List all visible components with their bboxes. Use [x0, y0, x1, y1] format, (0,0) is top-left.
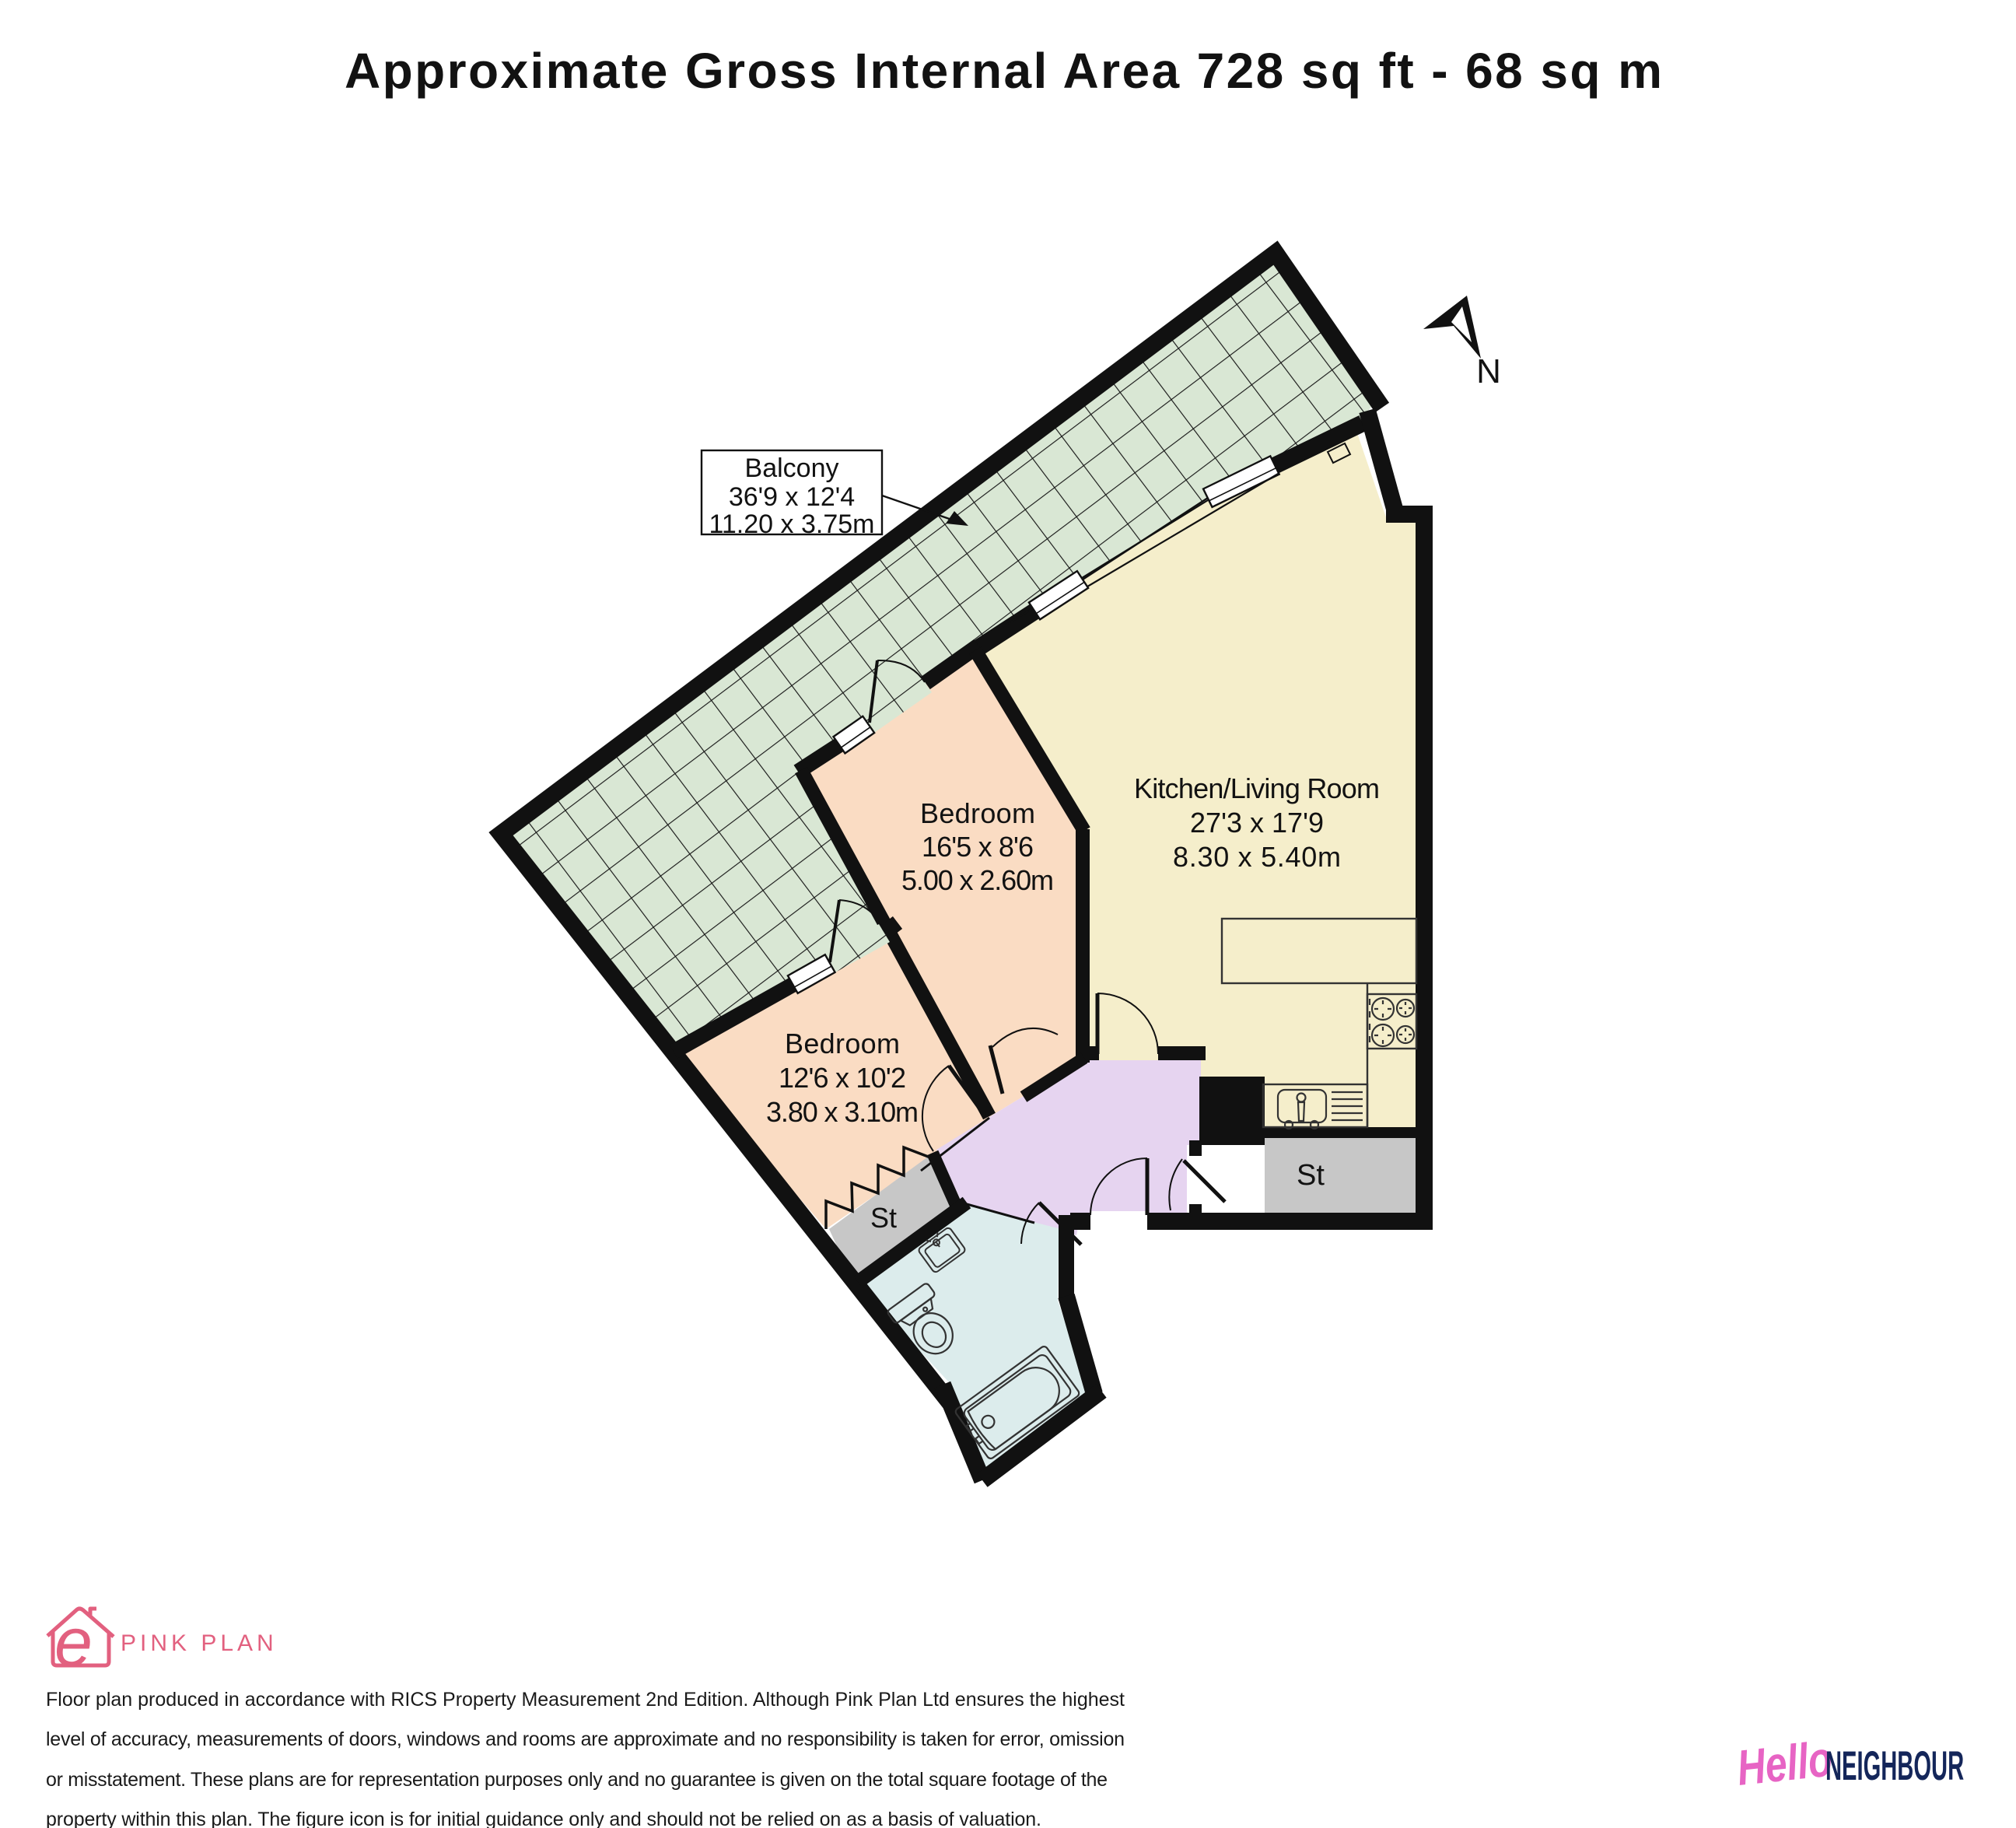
svg-text:Balcony: Balcony — [745, 453, 839, 483]
svg-text:5.00 x 2.60m: 5.00 x 2.60m — [901, 864, 1054, 896]
svg-text:property within this plan. The: property within this plan. The figure ic… — [46, 1809, 1041, 1828]
svg-text:16'5 x 8'6: 16'5 x 8'6 — [922, 831, 1034, 863]
svg-text:3.80 x 3.10m: 3.80 x 3.10m — [766, 1096, 919, 1128]
svg-text:11.20 x 3.75m: 11.20 x 3.75m — [709, 510, 875, 539]
svg-text:36'9 x 12'4: 36'9 x 12'4 — [729, 482, 855, 512]
svg-text:St: St — [870, 1202, 897, 1234]
svg-text:PINK PLAN: PINK PLAN — [121, 1630, 278, 1656]
svg-text:or misstatement. These plans a: or misstatement. These plans are for rep… — [46, 1769, 1108, 1791]
svg-text:Hello: Hello — [1734, 1732, 1835, 1797]
svg-text:N: N — [1476, 352, 1501, 390]
svg-text:27'3 x 17'9: 27'3 x 17'9 — [1190, 807, 1324, 839]
svg-text:Kitchen/Living Room: Kitchen/Living Room — [1134, 772, 1380, 804]
svg-text:Floor plan produced in accorda: Floor plan produced in accordance with R… — [46, 1689, 1125, 1711]
svg-text:St: St — [1297, 1159, 1325, 1192]
svg-text:Bedroom: Bedroom — [920, 797, 1035, 829]
svg-text:12'6 x 10'2: 12'6 x 10'2 — [779, 1062, 906, 1094]
svg-text:level of accuracy, measurement: level of accuracy, measurements of doors… — [46, 1728, 1125, 1750]
svg-text:NEIGHBOUR: NEIGHBOUR — [1825, 1743, 1964, 1789]
svg-text:8.30 x 5.40m: 8.30 x 5.40m — [1173, 841, 1341, 873]
svg-text:Bedroom: Bedroom — [785, 1028, 900, 1059]
svg-text:e: e — [54, 1603, 93, 1680]
